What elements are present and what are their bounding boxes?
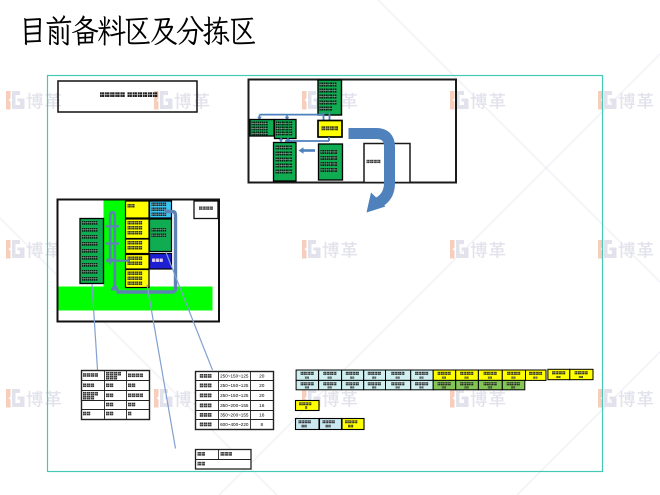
svg-text:350~200~155: 350~200~155 — [220, 403, 249, 408]
svg-text:250~150~125: 250~150~125 — [220, 374, 249, 379]
svg-text:250~150~125: 250~150~125 — [220, 383, 249, 388]
svg-text:8: 8 — [260, 422, 263, 428]
svg-text:600~400~220: 600~400~220 — [220, 422, 249, 427]
svg-text:250~150~125: 250~150~125 — [220, 393, 249, 398]
svg-text:16: 16 — [259, 413, 265, 419]
svg-text:16: 16 — [259, 403, 265, 409]
svg-text:20: 20 — [259, 383, 265, 389]
svg-text:20: 20 — [259, 393, 265, 399]
svg-text:350~200~155: 350~200~155 — [220, 413, 249, 418]
svg-text:20: 20 — [259, 374, 265, 380]
